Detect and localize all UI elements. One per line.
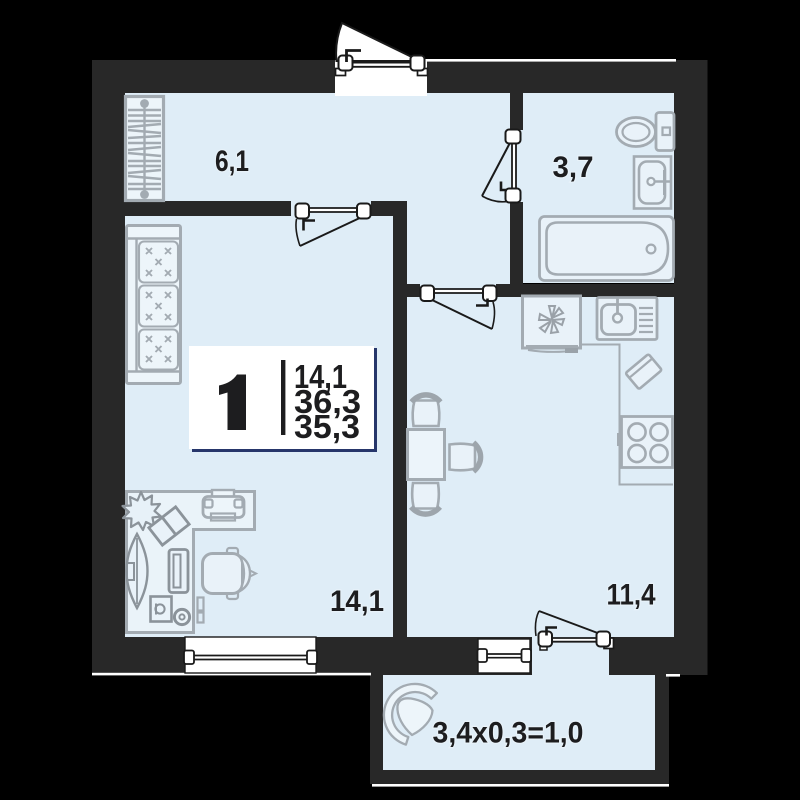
svg-text:6,1: 6,1 [215, 145, 249, 178]
svg-text:11,4: 11,4 [607, 579, 657, 612]
svg-text:3,4x0,3=1,0: 3,4x0,3=1,0 [433, 717, 584, 750]
svg-text:3,7: 3,7 [553, 151, 594, 184]
svg-text:35,3: 35,3 [294, 409, 360, 446]
svg-text:14,1: 14,1 [330, 585, 384, 618]
